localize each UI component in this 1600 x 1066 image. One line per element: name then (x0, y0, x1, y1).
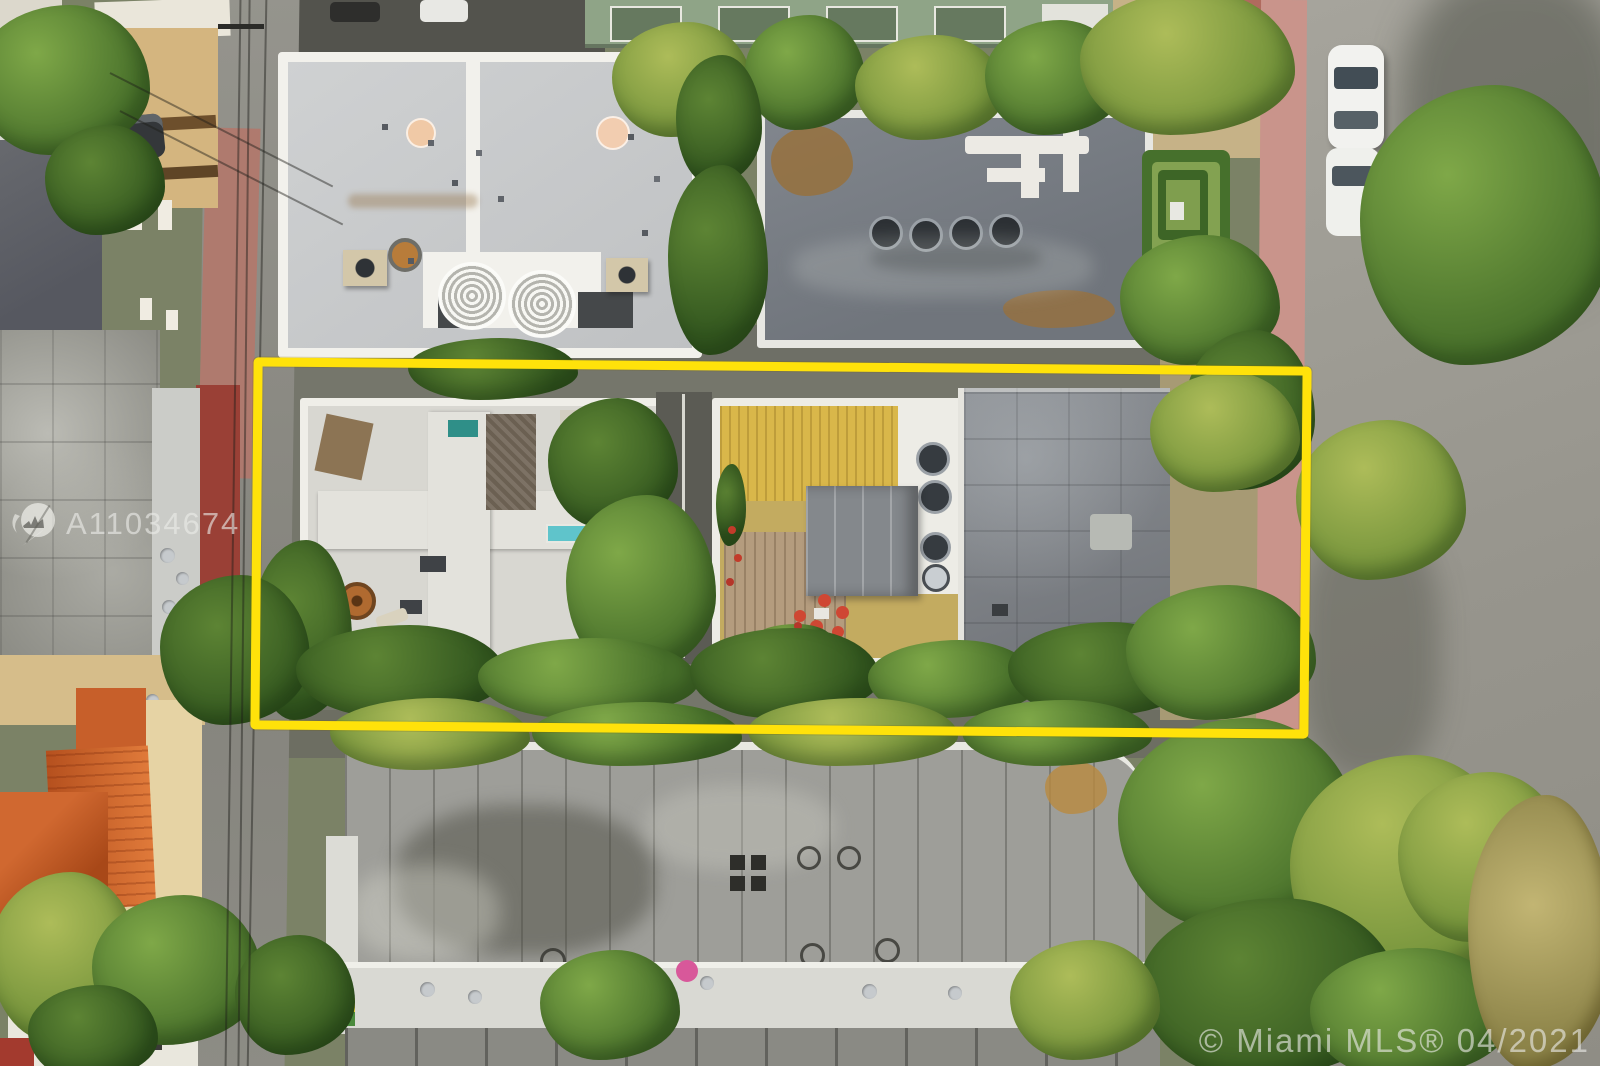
satellite-dish-icon (420, 982, 435, 997)
tree-canopy (45, 125, 165, 235)
palm-canopy (235, 935, 355, 1055)
rust-stain (348, 194, 478, 208)
roof-hatch (751, 876, 766, 891)
parked-car (330, 2, 380, 22)
garden-chair (1170, 202, 1184, 220)
copyright-watermark: © Miami MLS® 04/2021 (1199, 1022, 1590, 1060)
roof-wear (350, 865, 500, 960)
roof-furniture (428, 140, 434, 146)
tree-canopy (745, 15, 865, 130)
ac-unit (606, 258, 648, 292)
spiral-staircase (438, 262, 506, 330)
roof-vent (797, 846, 821, 870)
aerial-photo: A11034674 © Miami MLS® 04/2021 (0, 0, 1600, 1066)
listing-id-watermark: A11034674 (66, 506, 240, 542)
car-windshield (1334, 67, 1378, 89)
ac-unit (343, 250, 387, 286)
dark-roof-building (757, 110, 1153, 348)
palm-canopy (1010, 940, 1160, 1060)
window (166, 310, 178, 330)
mls-watermark: A11034674 (8, 498, 240, 550)
roof-vent (837, 846, 861, 870)
roof-paint-patch (987, 168, 1045, 182)
roof-hatch (730, 855, 745, 870)
bottom-apartment-roof (345, 742, 1145, 982)
roof-paint-patch (1063, 130, 1079, 192)
miami-mls-logo-icon (8, 498, 60, 550)
roof-vent (875, 938, 900, 963)
leaf-debris (771, 126, 853, 196)
patio-umbrella (596, 116, 630, 150)
window (140, 298, 152, 320)
leaf-debris (1045, 762, 1107, 814)
property-outline (250, 357, 1311, 738)
fire-pit (388, 238, 422, 272)
satellite-dish-icon (862, 984, 877, 999)
spiral-staircase (508, 270, 576, 338)
roof-hatch (730, 876, 745, 891)
palm-canopy (855, 35, 1005, 140)
parked-van (420, 0, 468, 22)
tree-canopy (668, 165, 768, 355)
satellite-dish-icon (160, 548, 175, 563)
parked-car-white (1328, 45, 1384, 149)
car-rear-window (1334, 111, 1378, 129)
copyright-text: © Miami MLS® 04/2021 (1199, 1022, 1590, 1059)
street-tree (1360, 85, 1600, 365)
roof-hatch (751, 855, 766, 870)
satellite-dish-icon (176, 572, 189, 585)
terracotta-roof (76, 688, 146, 752)
utility-pole-arm (218, 24, 264, 29)
satellite-dish-icon (468, 990, 482, 1004)
satellite-dish-icon (700, 976, 714, 990)
window (158, 200, 172, 230)
roof-wear (793, 236, 1093, 298)
pink-umbrella (676, 960, 698, 982)
palm-canopy (540, 950, 680, 1060)
street-tree (1296, 420, 1466, 580)
roof-hatch (578, 292, 633, 328)
satellite-dish-icon (948, 986, 962, 1000)
